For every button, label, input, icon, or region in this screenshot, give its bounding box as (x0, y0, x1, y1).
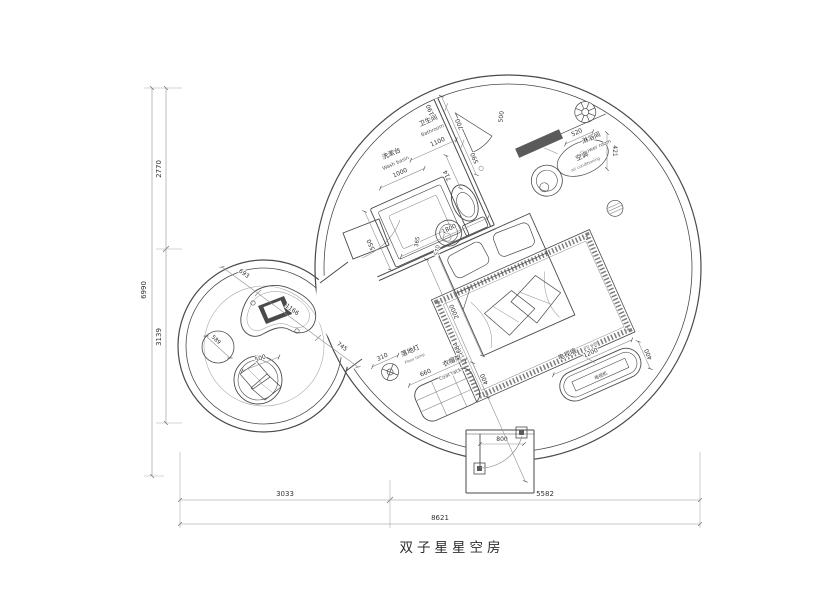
entry-vestibule: 800 (466, 427, 534, 493)
tv-wall-label-cn: 电视墙 (556, 346, 578, 362)
dim-ottoman: 589 (210, 335, 222, 347)
dim-wall-top: 190 (425, 103, 436, 116)
dim-height-lower: 3139 (155, 328, 163, 346)
throw-blanket-left (480, 285, 540, 341)
drawing-title: 双子星星空房 (400, 540, 505, 556)
dim-counter-depth: 550 (366, 238, 377, 251)
dim-bed-length: 2000 (448, 303, 461, 320)
dim-shower-door: 500 (498, 111, 506, 123)
floor-plan-drawing: 800 (0, 0, 837, 592)
bed (438, 213, 575, 355)
dim-sink-a: 365 (414, 236, 421, 248)
building-shell (178, 75, 701, 461)
dim-width-right: 5582 (536, 490, 554, 498)
dim-width-left: 3033 (276, 490, 294, 498)
dim-sink-b: 570 (434, 244, 441, 256)
entry-niche (343, 219, 389, 259)
ac-unit (515, 129, 563, 158)
dim-basin-width: 1000 (392, 167, 409, 180)
room-door-swing-arc (362, 220, 400, 258)
pillow-right (492, 221, 536, 258)
floor-lamp (379, 361, 401, 383)
coat-rack-label-en: Coat rack (438, 367, 462, 382)
dim-rack-width: 660 (419, 367, 432, 378)
dim-entry-door: 800 (496, 436, 508, 443)
door-post-left-core (477, 466, 482, 471)
dim-tv-depth: 400 (643, 347, 654, 360)
dim-bathroom-width: 1100 (429, 136, 446, 149)
dim-rack-depth: 400 (479, 372, 490, 385)
dim-overall-height: 6990 (140, 281, 148, 299)
floor-plan-page: 800 (0, 0, 837, 592)
wash-counter (370, 176, 469, 267)
round-stool (526, 160, 567, 201)
shower-head-icon (571, 98, 599, 126)
dim-toilet: 714 (442, 169, 453, 182)
door-post-right-core (519, 430, 524, 435)
floor-drain-icon (604, 198, 625, 219)
dim-ac-depth: 421 (611, 145, 618, 157)
dim-height-upper: 2770 (155, 160, 163, 178)
dim-width-total: 8621 (431, 514, 449, 522)
